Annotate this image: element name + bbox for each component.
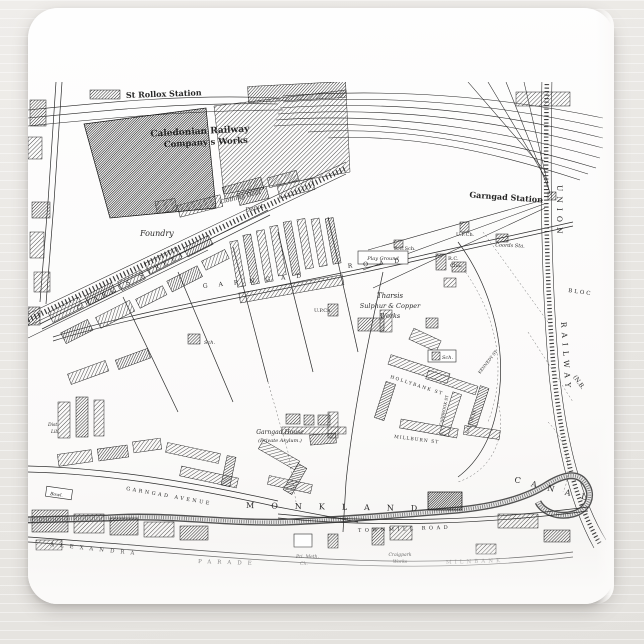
map-label-parade: PARADE <box>198 559 258 567</box>
map-label-play-ground: Play Ground <box>366 256 398 262</box>
vintage-map: St Rollox Station Caledonian Railway Com… <box>28 82 606 587</box>
map-label-railway: RAILWAY <box>559 322 573 393</box>
map-label-sch-west: Sch. <box>204 340 215 346</box>
map-label-dist-lib-1: Dist. <box>47 422 59 428</box>
map-label-millburn-st: MILLBURN ST <box>394 434 440 445</box>
map-label-pri-meth: Pri. Meth. <box>295 554 319 560</box>
map-label-union: UNION <box>555 185 564 239</box>
map-label-depot: Depot <box>244 203 265 215</box>
map-label-sulphur-copper: Sulphur & Copper <box>360 302 421 310</box>
map-label-alexandra: ALEXANDRA <box>49 542 141 558</box>
map-label-garngad-avenue: GARNGAD AVENUE <box>126 486 213 507</box>
map-label-milnbank: MILNBANK <box>446 558 503 566</box>
map-label-pri-meth-ch: Ch. <box>300 561 308 567</box>
map-label-rc-cha-1: R.C. <box>448 256 459 262</box>
map-label-coords-sta: Coords Sta. <box>495 242 525 249</box>
building-blocks <box>28 82 570 554</box>
map-label-garngad-house: Garngad House <box>256 429 304 436</box>
map-label-up-ch: U.P.Ch. <box>314 308 332 314</box>
map-label-dist-lib-2: Lib. <box>50 429 60 435</box>
map-label-bloc: BLOC <box>568 288 593 297</box>
map-label-sch-east: Sch. <box>442 355 453 361</box>
map-label-foundry: Foundry <box>139 229 174 238</box>
mousepad: St Rollox Station Caledonian Railway Com… <box>28 8 614 604</box>
map-label-rc-cha-2: Cha. <box>450 263 462 269</box>
map-label-kennedy-st: KENNEDY ST <box>477 349 499 375</box>
map-label-garngad-station: Garngad Station <box>469 189 543 204</box>
map-label-private-asylum: (Private Asylum.) <box>258 437 302 444</box>
map-label-tharsis-works: Works <box>380 312 401 320</box>
map-label-rc-sch: R.C.Sch. <box>394 246 416 252</box>
map-label-uf-ch: U.F.Ch. <box>456 232 475 238</box>
map-label-tharsis: Tharsis <box>377 292 404 300</box>
map-label-craigpark: Craigpark <box>388 552 411 558</box>
map-label-craigpark-works: Works <box>393 559 408 565</box>
map-label-monkland: MONKLAND <box>246 501 434 513</box>
map-label-st-rollox-station: St Rollox Station <box>126 87 202 100</box>
map-artwork: St Rollox Station Caledonian Railway Com… <box>28 82 606 587</box>
